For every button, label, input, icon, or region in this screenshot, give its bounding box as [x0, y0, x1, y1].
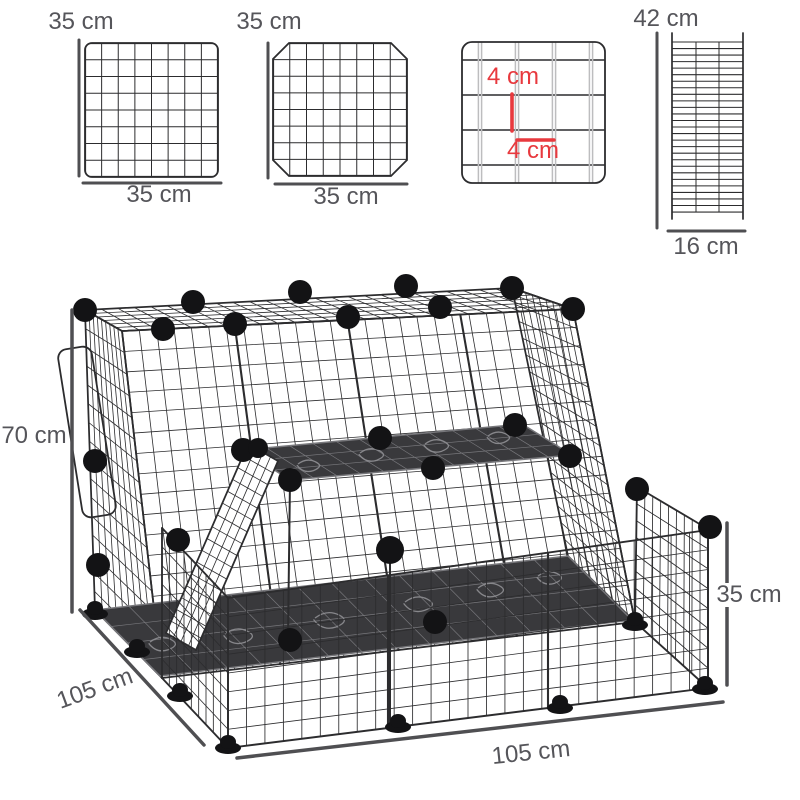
cage-height-label: 70 cm — [1, 424, 66, 448]
door-panel-height-label: 35 cm — [236, 10, 301, 34]
ramp-panel-height-label: 42 cm — [633, 7, 698, 31]
fence-height-label: 35 cm — [713, 583, 784, 607]
ramp-panel-width-label: 16 cm — [673, 235, 738, 259]
cage — [57, 274, 722, 754]
mesh-cell-width-label: 4 cm — [507, 139, 559, 163]
square-panel-width-label: 35 cm — [126, 183, 191, 207]
ramp-panel — [672, 33, 743, 219]
door-panel-width-label: 35 cm — [313, 185, 378, 209]
square-panel-height-label: 35 cm — [48, 10, 113, 34]
mesh-cell-height-label: 4 cm — [487, 65, 539, 89]
product-dimension-diagram: 35 cm 35 cm 35 cm 35 cm 4 cm 4 cm 42 cm … — [0, 0, 800, 800]
